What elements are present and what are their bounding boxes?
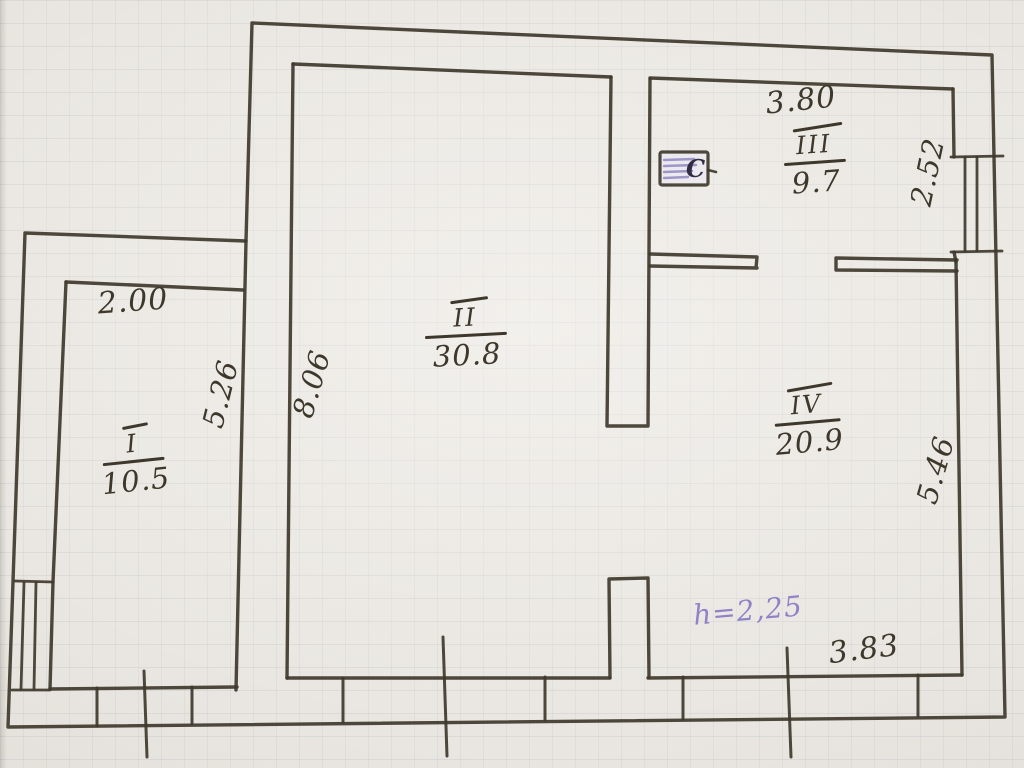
window-room2-bottom — [343, 637, 545, 756]
wall-west-lower — [236, 241, 246, 690]
room-3-numeral: III — [791, 128, 837, 163]
window-room1-left — [12, 581, 53, 690]
floor-plan-page: C 2.00 5.26 8.06 3.80 2.52 5.46 3.83 h=2… — [0, 0, 1024, 768]
wall-divider-right — [836, 258, 957, 271]
room-2-numeral: II — [448, 301, 481, 335]
room-4-area: 20.9 — [774, 425, 845, 460]
wall-room3-right-inner — [953, 89, 956, 262]
room-4-label: IV 20.9 — [771, 386, 845, 460]
room-1-numeral: I — [121, 427, 144, 461]
wall-bottom-inner-room4 — [648, 675, 962, 678]
wall-room2-top-inner — [293, 64, 611, 77]
wall-middle-stub — [609, 578, 649, 677]
wall-room1-left-inner — [50, 282, 66, 689]
window-room1-bottom — [97, 671, 192, 757]
dimension-room3-top: 3.80 — [764, 82, 838, 119]
room-1-area: 10.5 — [100, 463, 171, 499]
wall-room4-right-inner — [956, 262, 962, 675]
stove-label: C — [686, 157, 705, 181]
wall-room2-left-inner — [287, 64, 293, 678]
wall-divider-left — [650, 254, 757, 268]
wall-outer-outline — [8, 23, 1005, 727]
room-1-label: I 10.5 — [96, 425, 171, 500]
room-2-area: 30.8 — [432, 339, 502, 372]
room-3-area: 9.7 — [791, 166, 842, 198]
room-2-label: II 30.8 — [423, 300, 508, 372]
dimension-room1-top: 2.00 — [97, 285, 170, 320]
dimension-room4-bottom: 3.83 — [827, 631, 901, 669]
wall-middle-upper — [607, 77, 650, 426]
room-3-label: III 9.7 — [782, 127, 849, 199]
room-4-numeral: IV — [785, 387, 828, 422]
